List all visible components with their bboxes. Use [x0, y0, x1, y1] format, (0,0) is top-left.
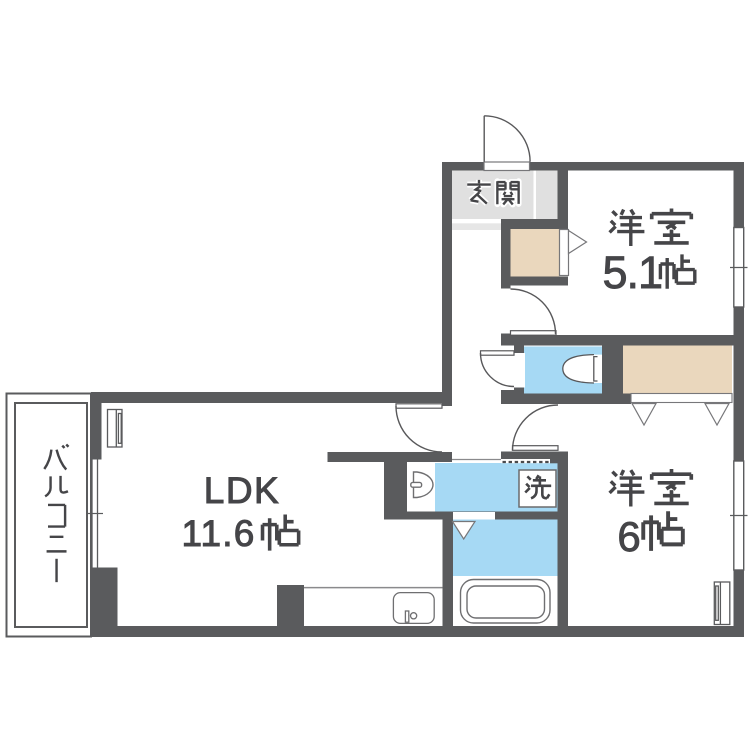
- svg-text:5.1: 5.1: [603, 247, 663, 298]
- svg-text:11.6: 11.6: [182, 513, 256, 554]
- svg-text:6: 6: [617, 513, 640, 560]
- svg-text:LDK: LDK: [204, 470, 280, 511]
